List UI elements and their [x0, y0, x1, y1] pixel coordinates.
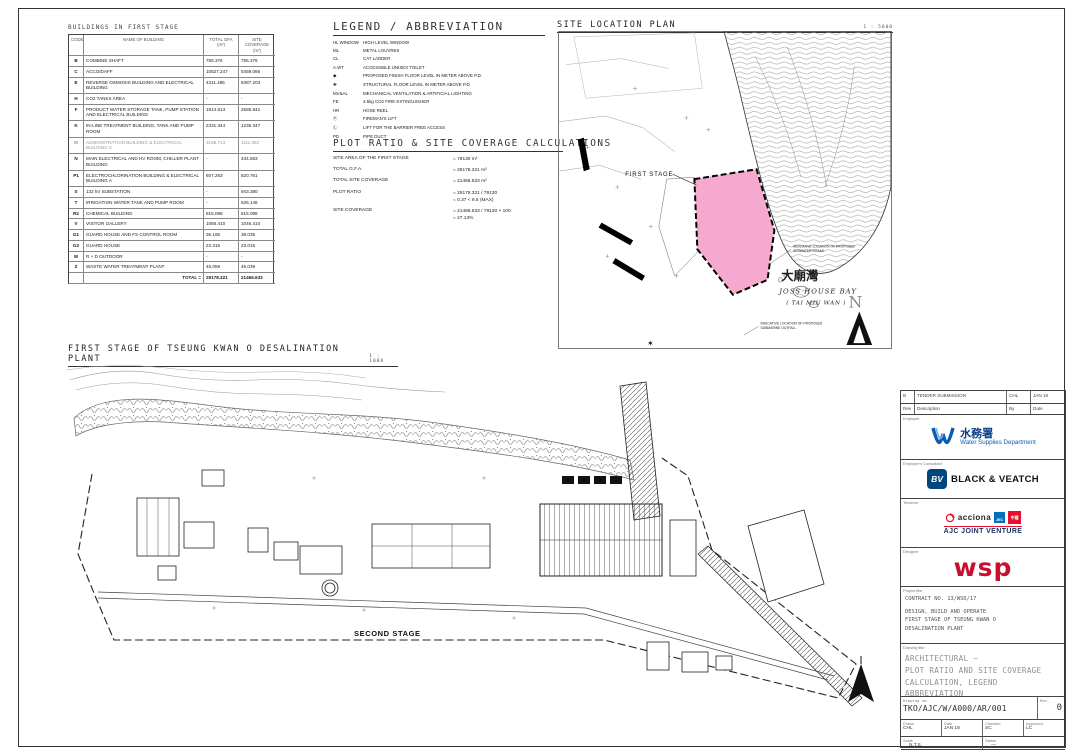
site-location-plan-map: FIRST STAGE 大廟灣 JOSS HOUSE BAY ( TAI MIU…	[557, 31, 893, 349]
employer-name-chinese: 水務署	[960, 428, 1036, 440]
legend-symbol: ◆	[333, 73, 363, 79]
cell-code: T	[69, 198, 84, 209]
cell-gfa: 45.059	[204, 262, 239, 273]
cell-blank	[69, 273, 84, 284]
drawing-number-section: Drawing no. TKO/AJC/W/A000/AR/001 Rev. 0	[901, 697, 1065, 720]
calc-label: SITE AREA OF THE FIRST STAGE	[333, 156, 453, 163]
calc-line: SITE COVERAGE = 21466.633 / 79130 × 100 …	[333, 208, 563, 222]
legend-description: STRUCTURAL FLOOR LEVEL IN METER ABOVE P.…	[363, 82, 471, 88]
table-total-row: TOTAL = 29178.321 21466.633	[69, 273, 273, 284]
drawing-no-label: Drawing no.	[903, 698, 929, 703]
legend-item: CL CAT LADDER	[333, 56, 545, 61]
calc-value-2: = 27.13%	[453, 215, 511, 222]
location-plan-scale: 1 : 5000	[863, 25, 893, 30]
calc-label: TOTAL SITE COVERAGE	[333, 178, 453, 185]
cell-coverage: -	[239, 252, 275, 263]
survey-crosses	[586, 86, 710, 278]
cell-coverage: 755.376	[239, 56, 275, 67]
vegetation-band	[74, 399, 634, 480]
table-row: V VISITOR GALLERY 1066.410 1046.410	[69, 219, 273, 230]
wsd-logo-icon	[930, 425, 956, 449]
table-row: C ACCO/DAFF 10527.247 5459.086	[69, 67, 273, 78]
legend-description: FIREMAN'S LIFT	[363, 116, 397, 122]
table-row: S 132 kV SUBSTATION - 943.380	[69, 187, 273, 198]
calc-value: = 79130 m²	[453, 156, 477, 163]
legend-item: ◆ PROPOSED FINISH FLOOR LEVEL IN METER A…	[333, 73, 545, 79]
cell-name: ELECTROCHLORINATION BUILDING & ELECTRICA…	[84, 171, 204, 187]
legend-item: A.WT ACCESSIBLE UNISEX TOILET	[333, 65, 545, 70]
intake-note-line1: INDICATIVE LOCATION OF PROPOSED	[793, 244, 855, 248]
cell-code: Z	[69, 262, 84, 273]
drawing-number: TKO/AJC/W/A000/AR/001	[903, 703, 1007, 713]
meta-row: DrawnCHL DateJAN 18 CheckedSC ApprovedLC	[901, 720, 1065, 737]
cell-gfa: -	[204, 94, 239, 105]
drawing-title-section: Drawing title ARCHITECTURAL — PLOT RATIO…	[901, 644, 1065, 697]
cell-gfa: 1066.410	[204, 219, 239, 230]
cell-coverage: 46.039	[239, 262, 275, 273]
cell-coverage: 6387.203	[239, 78, 275, 94]
cell-coverage: -	[239, 94, 275, 105]
legend-symbol: Ⓛ	[333, 125, 363, 131]
rev-label: Rev.	[1040, 698, 1049, 703]
cell-coverage: 815.098	[239, 209, 275, 220]
cell-coverage: 1046.410	[239, 219, 275, 230]
location-plan-title: SITE LOCATION PLAN	[557, 20, 676, 30]
employer-name-english: Water Supplies Department	[960, 440, 1036, 447]
cell-code: G1	[69, 230, 84, 241]
designer-label: Designer	[903, 549, 919, 554]
pier	[620, 382, 660, 520]
checked-label: Checked	[985, 721, 1000, 726]
cell-name: IN-LINE TREATMENT BUILDING, TANK AND PUM…	[84, 121, 204, 137]
table-row: H CO2 TANKS AREA - -	[69, 94, 273, 105]
cell-code: P1	[69, 171, 84, 187]
cell-name: ACCO/DAFF	[84, 67, 204, 78]
drawing-sheet: BUILDINGS IN FIRST STAGE CODE NAME OF BU…	[0, 0, 1069, 756]
rev-header-rev: Rev	[901, 404, 915, 414]
legend-description: METAL LOUVRES	[363, 48, 399, 53]
calc-value: = 21466.633 m²	[453, 178, 487, 185]
cell-gfa: -	[204, 187, 239, 198]
cell-coverage: 820.761	[239, 171, 275, 187]
table-row: M ADMINISTRATION BUILDING & ELECTRICAL B…	[69, 138, 273, 154]
cell-code: V	[69, 219, 84, 230]
cell-gfa: -	[204, 198, 239, 209]
calc-values: = 29178.321 m²	[453, 167, 487, 174]
bay-name-english: JOSS HOUSE BAY	[777, 288, 857, 296]
bay-name-sub: ( TAI MIU WAN )	[786, 300, 846, 307]
cell-gfa: 3166.713	[204, 138, 239, 154]
calc-line: PLOT RATIO = 29178.321 / 79130 = 0.37 < …	[333, 190, 563, 204]
contour-line	[70, 371, 445, 392]
calc-value: = 21466.633 / 79130 × 100	[453, 208, 511, 215]
legend-list: HL WINDOW HIGH LEVEL WINDOW ML METAL LOU…	[333, 40, 545, 139]
drawing-title-line: ABBREVIATION	[905, 688, 1061, 697]
cell-code: C	[69, 67, 84, 78]
total-coverage: 21466.633	[239, 273, 275, 284]
drawn-label: Drawn	[903, 721, 914, 726]
rev-id: B	[901, 391, 915, 403]
cell-code: W	[69, 252, 84, 263]
scale-label: Scale	[903, 738, 913, 743]
legend-item: HL WINDOW HIGH LEVEL WINDOW	[333, 40, 545, 45]
employer-label: Employer	[903, 416, 919, 421]
acciona-name: acciona	[958, 513, 991, 522]
cell-code: H	[69, 94, 84, 105]
cell-coverage: 526.148	[239, 198, 275, 209]
rev-date: JAN 18	[1031, 391, 1065, 403]
table-row: T IRRIGATION WATER TANK AND PUMP ROOM - …	[69, 198, 273, 209]
table-row: N MAIN ELECTRICAL AND HV ROOM, CHILLER P…	[69, 154, 273, 170]
cell-name: IRRIGATION WATER TANK AND PUMP ROOM	[84, 198, 204, 209]
north-label: N	[848, 293, 862, 312]
cell-gfa: 10527.247	[204, 67, 239, 78]
table-row: W R + D OUTDOOR - -	[69, 252, 273, 263]
rev-description: TENDER SUBMISSION	[915, 391, 1007, 403]
table-row: E REVERSE OSMOSIS BUILDING AND ELECTRICA…	[69, 78, 273, 94]
calc-values: = 21466.633 m²	[453, 178, 487, 185]
cell-code: G2	[69, 241, 84, 252]
calc-values: = 21466.633 / 79130 × 100 = 27.13%	[453, 208, 511, 222]
cell-name: COMBINE SHAFT	[84, 56, 204, 67]
buildings-table-header: CODE NAME OF BUILDING TOTAL GFA (m²) SIT…	[69, 35, 273, 56]
cell-gfa: 607.263	[204, 171, 239, 187]
buildings-table-grid: CODE NAME OF BUILDING TOTAL GFA (m²) SIT…	[68, 34, 274, 284]
cell-code: S	[69, 187, 84, 198]
employer-section: Employer 水務署 Water Supplies Department	[901, 415, 1065, 460]
calc-value: = 29178.321 m²	[453, 167, 487, 174]
cell-coverage: 434.563	[239, 154, 275, 170]
consultant-section: Employer's Consultant BV BLACK & VEATCH	[901, 460, 1065, 499]
title-block: B TENDER SUBMISSION CHL JAN 18 Rev Descr…	[900, 390, 1066, 748]
calc-values: = 29178.321 / 79130 = 0.37 < 9.5 (MAX)	[453, 190, 497, 204]
legend-description: HOSE REEL	[363, 108, 388, 113]
calc-label: PLOT RATIO	[333, 190, 453, 204]
cell-name: GUARD HOUSE AND FS CONTROL ROOM	[84, 230, 204, 241]
cell-coverage: 23.015	[239, 241, 275, 252]
drawing-title-line: PLOT RATIO AND SITE COVERAGE	[905, 665, 1061, 677]
legend-item: ✚ STRUCTURAL FLOOR LEVEL IN METER ABOVE …	[333, 82, 545, 88]
table-row: P1 ELECTROCHLORINATION BUILDING & ELECTR…	[69, 171, 273, 187]
acciona-logo-icon	[945, 513, 955, 523]
tenderer-name: AJC JOINT VENTURE	[944, 526, 1023, 535]
rev-header-description: Description	[915, 404, 1007, 414]
cell-code: K	[69, 121, 84, 137]
table-row: K IN-LINE TREATMENT BUILDING, TANK AND P…	[69, 121, 273, 137]
legend-item: Ⓛ LIFT FOR THE BARRIER FREE ACCESS	[333, 125, 545, 131]
cell-gfa: 755.376	[204, 56, 239, 67]
legend-symbol: ✚	[333, 82, 363, 88]
calc-values: = 79130 m²	[453, 156, 477, 163]
calc-line: TOTAL G.F.A. = 29178.321 m²	[333, 167, 563, 174]
legend-symbol: HL WINDOW	[333, 40, 363, 45]
legend-item: ML METAL LOUVRES	[333, 48, 545, 53]
col-code: CODE	[69, 35, 84, 56]
cell-name: VISITOR GALLERY	[84, 219, 204, 230]
cell-coverage: 38.035	[239, 230, 275, 241]
project-line: FIRST STAGE OF TSEUNG KWAN O	[905, 616, 1061, 625]
cell-code: B	[69, 56, 84, 67]
designer-section: Designer wsp	[901, 548, 1065, 587]
plot-ratio-lines: SITE AREA OF THE FIRST STAGE = 79130 m² …	[333, 156, 563, 222]
star-marker: ✶	[647, 339, 654, 348]
cell-code: M	[69, 138, 84, 154]
table-row: F PRODUCT WATER STORAGE TANK, PUMP STATI…	[69, 105, 273, 121]
table-row: B COMBINE SHAFT 755.376 755.376	[69, 56, 273, 67]
approved-label: Approved	[1026, 721, 1043, 726]
legend-item: HR HOSE REEL	[333, 108, 545, 113]
cell-gfa: 4311.485	[204, 78, 239, 94]
cell-name: GUARD HOUSE	[84, 241, 204, 252]
legend-description: LIFT FOR THE BARRIER FREE ACCESS	[363, 125, 445, 131]
table-row: G1 GUARD HOUSE AND FS CONTROL ROOM 35.18…	[69, 230, 273, 241]
calc-label: TOTAL G.F.A.	[333, 167, 453, 174]
cell-code: F	[69, 105, 84, 121]
project-title-section: Project title CONTRACT NO. 13/WSD/17 DES…	[901, 587, 1065, 644]
cell-name: WASTE WATER TREATMENT PLANT	[84, 262, 204, 273]
legend-description: ACCESSIBLE UNISEX TOILET	[363, 65, 425, 70]
cell-gfa: -	[204, 154, 239, 170]
total-gfa: 29178.321	[204, 273, 239, 284]
project-title-label: Project title	[903, 588, 922, 593]
legend-description: 4.5kg CO2 FIRE EXTINGUISHER	[363, 99, 429, 104]
consultant-name: BLACK & VEATCH	[951, 474, 1039, 485]
drawing-title-line: CALCULATION, LEGEND	[905, 677, 1061, 689]
plot-ratio-title: PLOT RATIO & SITE COVERAGE CALCULATIONS	[333, 138, 563, 152]
checked-value: SC	[985, 726, 992, 731]
second-stage-label: SECOND STAGE	[354, 629, 421, 638]
scale-value: N.T.S.	[909, 743, 922, 748]
cell-name: REVERSE OSMOSIS BUILDING AND ELECTRICAL …	[84, 78, 204, 94]
rev-value: 0	[1057, 703, 1062, 713]
cell-gfa: -	[204, 252, 239, 263]
first-stage-area	[694, 169, 774, 294]
cell-name: ADMINISTRATION BUILDING & ELECTRICAL BUI…	[84, 138, 204, 154]
calc-label: SITE COVERAGE	[333, 208, 453, 222]
legend-item: FE 4.5kg CO2 FIRE EXTINGUISHER	[333, 99, 545, 104]
cell-coverage: 943.380	[239, 187, 275, 198]
legend-symbol: A.WT	[333, 65, 363, 70]
outfall-note-line1: INDICATIVE LOCATION OF PROPOSED	[761, 321, 823, 325]
col-coverage: SITE COVERAGE (m²)	[239, 35, 275, 56]
rev-header-date: Date	[1031, 404, 1065, 414]
cell-name: CHEMICAL BUILDING	[84, 209, 204, 220]
wsp-logo: wsp	[954, 553, 1013, 582]
legend-description: MECHANICAL VENTILATION & ARTIFICIAL LIGH…	[363, 91, 472, 96]
calc-value-2: = 0.37 < 9.5 (MAX)	[453, 197, 497, 204]
table-row: G2 GUARD HOUSE 22.315 23.015	[69, 241, 273, 252]
legend-description: PROPOSED FINISH FLOOR LEVEL IN METER ABO…	[363, 73, 482, 79]
black-and-veatch-logo-icon: BV	[927, 469, 947, 489]
intake-note-line2: SEAWATER INTAKE	[793, 249, 825, 253]
cell-code: R2	[69, 209, 84, 220]
cell-name: PRODUCT WATER STORAGE TANK, PUMP STATION…	[84, 105, 204, 121]
china-state-logo-icon: 中建	[1008, 511, 1021, 524]
rev-by: CHL	[1007, 391, 1031, 403]
drawing-title-label: Drawing title	[903, 645, 924, 650]
cell-coverage: 1111.062	[239, 138, 275, 154]
cell-gfa: 22.315	[204, 241, 239, 252]
buildings-table: BUILDINGS IN FIRST STAGE CODE NAME OF BU…	[68, 24, 274, 284]
revision-header-row: Rev Description By Date	[901, 404, 1065, 415]
legend-symbol: MV&AL	[333, 91, 363, 96]
legend-symbol: FE	[333, 99, 363, 104]
small-plant-units	[562, 476, 622, 484]
revision-row: B TENDER SUBMISSION CHL JAN 18	[901, 391, 1065, 404]
buildings-table-title: BUILDINGS IN FIRST STAGE	[68, 24, 274, 31]
bay-name-chinese: 大廟灣	[781, 268, 819, 283]
total-label: TOTAL =	[84, 273, 204, 284]
legend-symbol: HR	[333, 108, 363, 113]
plot-ratio-section: PLOT RATIO & SITE COVERAGE CALCULATIONS …	[333, 138, 563, 226]
scale-status-row: ScaleN.T.S. Status—	[901, 737, 1065, 750]
cell-gfa: 2331.344	[204, 121, 239, 137]
project-line: DESALINATION PLANT	[905, 625, 1061, 634]
outfall-note-line2: SUBMARINE OUTFALL	[761, 326, 797, 330]
col-gfa: TOTAL GFA (m²)	[204, 35, 239, 56]
date-label: Date	[944, 721, 952, 726]
consultant-label: Employer's Consultant	[903, 461, 942, 466]
approved-value: LC	[1026, 726, 1032, 731]
north-arrow-icon	[848, 664, 874, 702]
cell-gfa: 35.185	[204, 230, 239, 241]
cell-gfa: 1914.813	[204, 105, 239, 121]
status-label: Status	[985, 738, 996, 743]
cell-name: CO2 TANKS AREA	[84, 94, 204, 105]
cell-coverage: 5459.086	[239, 67, 275, 78]
calc-value: = 29178.321 / 79130	[453, 190, 497, 197]
legend-item: MV&AL MECHANICAL VENTILATION & ARTIFICIA…	[333, 91, 545, 96]
legend-symbol: CL	[333, 56, 363, 61]
table-row: R2 CHEMICAL BUILDING 815.098 815.098	[69, 209, 273, 220]
rev-header-by: By	[1007, 404, 1031, 414]
cell-coverage: 2585.841	[239, 105, 275, 121]
cell-code: N	[69, 154, 84, 170]
legend-symbol: Ⓕ	[333, 116, 363, 122]
tenderer-label: Tenderer	[903, 500, 918, 505]
cell-code: E	[69, 78, 84, 94]
calc-line: TOTAL SITE COVERAGE = 21466.633 m²	[333, 178, 563, 185]
legend-item: Ⓕ FIREMAN'S LIFT	[333, 116, 545, 122]
date-value: JAN 18	[944, 726, 960, 731]
drawing-title-line: ARCHITECTURAL —	[905, 653, 1061, 665]
legend-description: HIGH LEVEL WINDOW	[363, 40, 409, 45]
cell-name: R + D OUTDOOR	[84, 252, 204, 263]
project-line: DESIGN, BUILD AND OPERATE	[905, 608, 1061, 617]
legend-section: LEGEND / ABBREVIATION HL WINDOW HIGH LEV…	[333, 20, 545, 142]
legend-title: LEGEND / ABBREVIATION	[333, 20, 545, 36]
cell-gfa: 815.098	[204, 209, 239, 220]
buildings-table-body: B COMBINE SHAFT 755.376 755.376 C ACCO/D…	[69, 56, 273, 273]
project-line: CONTRACT NO. 13/WSD/17	[905, 595, 1061, 604]
jec-logo-icon: JEC	[994, 512, 1005, 523]
legend-symbol: ML	[333, 48, 363, 53]
cell-name: 132 kV SUBSTATION	[84, 187, 204, 198]
main-site-plan: SECOND STAGE	[62, 358, 895, 742]
status-value: —	[991, 743, 996, 748]
cell-name: MAIN ELECTRICAL AND HV ROOM, CHILLER PLA…	[84, 154, 204, 170]
first-stage-label: FIRST STAGE	[625, 171, 673, 178]
calc-line: SITE AREA OF THE FIRST STAGE = 79130 m²	[333, 156, 563, 163]
cell-coverage: 1235.347	[239, 121, 275, 137]
legend-description: CAT LADDER	[363, 56, 390, 61]
drawn-value: CHL	[903, 726, 913, 731]
col-name: NAME OF BUILDING	[84, 35, 204, 56]
tenderer-section: Tenderer acciona JEC 中建 AJC JOINT VENTUR…	[901, 499, 1065, 548]
table-row: Z WASTE WATER TREATMENT PLANT 45.059 46.…	[69, 262, 273, 273]
